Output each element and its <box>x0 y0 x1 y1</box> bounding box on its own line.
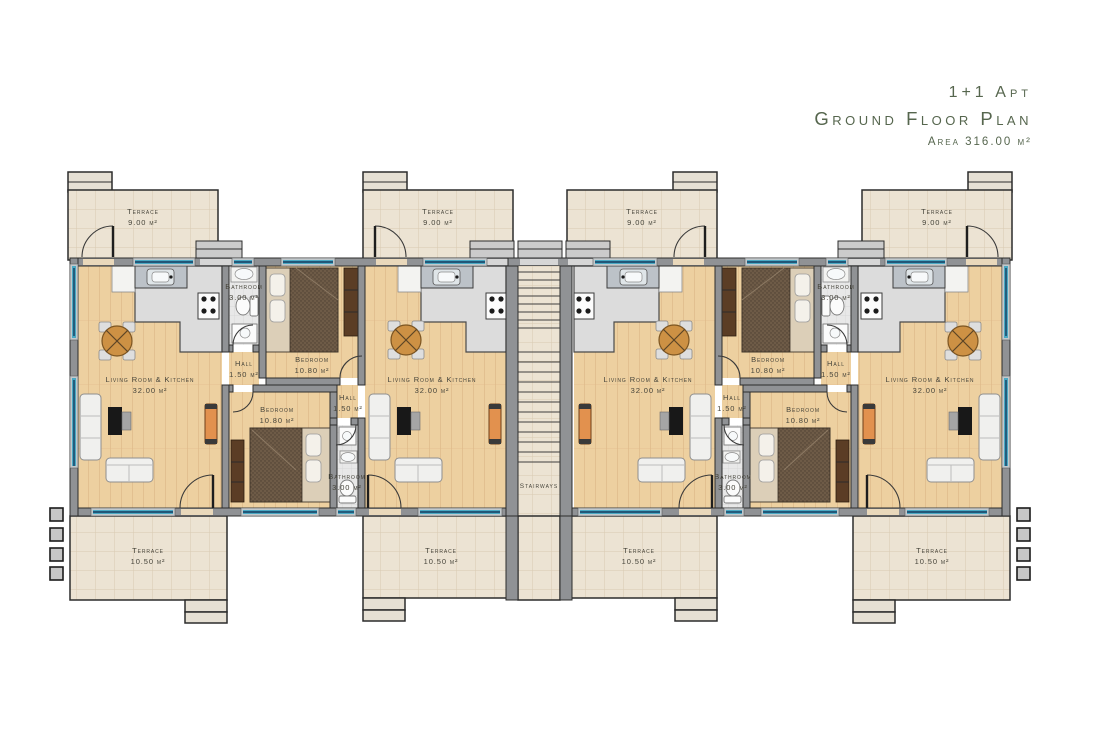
stove-burner <box>873 308 878 313</box>
bed-blanket <box>290 268 338 352</box>
console-cap <box>863 404 875 409</box>
interior-wall <box>743 385 827 392</box>
kitchen-sink-basin <box>911 272 928 282</box>
tv <box>108 407 122 435</box>
interior-wall <box>330 418 337 425</box>
stove-burner <box>489 308 494 313</box>
stove-burner <box>210 308 215 313</box>
door-opening <box>376 259 407 265</box>
door-opening <box>673 259 704 265</box>
stove-burner <box>864 308 869 313</box>
side-sofa <box>690 394 711 460</box>
wardrobe <box>231 440 244 502</box>
console-cap <box>205 404 217 409</box>
site-marker <box>1017 508 1030 521</box>
media-console <box>489 404 501 444</box>
plan-area-total: Area 316.00 m² <box>814 136 1032 148</box>
pillow <box>759 434 774 456</box>
wardrobe <box>722 268 736 336</box>
interior-wall <box>358 266 365 385</box>
toilet-tank <box>339 496 356 503</box>
plan-title: 1+1 Apt <box>814 84 1032 102</box>
interior-wall <box>266 378 340 385</box>
pillow <box>270 300 285 322</box>
toilet-bowl <box>726 480 740 496</box>
door-opening <box>867 509 899 515</box>
stove-burner <box>210 296 215 301</box>
toilet-tank <box>250 296 258 316</box>
stove <box>486 293 506 319</box>
terrace-bottom <box>560 516 717 598</box>
interior-wall <box>253 345 259 352</box>
wardrobe <box>344 268 358 336</box>
stove-burner <box>201 296 206 301</box>
site-marker <box>1017 567 1030 580</box>
tv-stand <box>122 412 131 430</box>
terrace-bottom <box>70 516 227 600</box>
interior-wall <box>847 385 851 392</box>
hall-floor <box>229 352 259 385</box>
console-cap <box>205 439 217 444</box>
door-opening <box>181 509 213 515</box>
stove-burner <box>864 296 869 301</box>
shower-head <box>830 328 840 338</box>
bath-sink <box>725 453 739 462</box>
media-console <box>863 404 875 444</box>
stairways-label: Stairways <box>499 483 579 490</box>
console-cap <box>489 439 501 444</box>
side-sofa <box>979 394 1000 460</box>
faucet <box>907 275 910 278</box>
site-marker <box>50 528 63 541</box>
door-opening <box>679 509 711 515</box>
terrace-steps <box>185 612 227 623</box>
stair-entry-opening <box>520 259 558 265</box>
terrace-steps <box>675 598 717 610</box>
interior-wall <box>330 392 337 508</box>
site-marker <box>50 508 63 521</box>
site-marker <box>1017 528 1030 541</box>
stove <box>198 293 219 319</box>
terrace-steps <box>853 600 895 612</box>
stove-burner <box>498 296 503 301</box>
stove-burner <box>201 308 206 313</box>
bed-blanket <box>778 428 830 502</box>
faucet <box>169 275 172 278</box>
terrace-steps <box>185 600 227 612</box>
stair-wall <box>560 266 572 516</box>
console-cap <box>579 439 591 444</box>
kitchen-sink-basin <box>438 272 455 282</box>
stove-burner <box>489 296 494 301</box>
media-console <box>579 404 591 444</box>
terrace-bottom <box>853 516 1010 600</box>
interior-wall <box>715 418 722 508</box>
kitchen-cabinet <box>659 266 682 292</box>
hall-floor <box>821 352 851 385</box>
console-cap <box>489 404 501 409</box>
toilet-tank <box>724 496 741 503</box>
interior-wall <box>358 418 365 508</box>
shower-head <box>240 328 250 338</box>
stove-burner <box>585 296 590 301</box>
console-cap <box>863 439 875 444</box>
stove-burner <box>498 308 503 313</box>
stove-burner <box>576 308 581 313</box>
terrace-steps <box>363 598 405 610</box>
toilet-tank <box>822 296 830 316</box>
bath-sink <box>341 453 355 462</box>
door-opening <box>966 259 997 265</box>
pillow <box>795 274 810 296</box>
pillow <box>306 434 321 456</box>
stove-burner <box>873 296 878 301</box>
bed-blanket <box>742 268 790 352</box>
door-opening <box>369 509 401 515</box>
faucet <box>621 275 624 278</box>
side-sofa <box>369 394 390 460</box>
stove-burner <box>585 308 590 313</box>
kitchen-cabinet <box>398 266 421 292</box>
pillow <box>270 274 285 296</box>
floor-plan-page: Terrace9.00 m²Terrace9.00 m²Terrace9.00 … <box>0 0 1100 733</box>
side-sofa <box>80 394 101 460</box>
stove-burner <box>576 296 581 301</box>
interior-wall <box>847 345 851 352</box>
interior-wall <box>743 418 750 425</box>
terrace-steps <box>363 610 405 621</box>
bath-sink <box>827 269 845 280</box>
tv <box>958 407 972 435</box>
interior-wall <box>351 418 358 425</box>
interior-wall <box>851 266 858 352</box>
site-marker <box>1017 548 1030 561</box>
interior-wall <box>743 392 750 508</box>
tv-stand <box>949 412 958 430</box>
interior-wall <box>851 385 858 508</box>
plan-subtitle: Ground Floor Plan <box>814 108 1032 130</box>
tv <box>669 407 683 435</box>
terrace-steps <box>675 610 717 621</box>
toilet-bowl <box>830 297 844 315</box>
kitchen-cabinet <box>112 266 135 292</box>
stair-wall <box>560 516 572 600</box>
site-marker <box>50 567 63 580</box>
toilet-bowl <box>340 480 354 496</box>
interior-wall <box>229 345 233 352</box>
title-block: 1+1 Apt Ground Floor Plan Area 316.00 m² <box>814 84 1032 148</box>
terrace-steps <box>853 612 895 623</box>
toilet-bowl <box>236 297 250 315</box>
interior-wall <box>715 266 722 385</box>
hall-floor <box>722 385 743 418</box>
stove <box>861 293 882 319</box>
interior-wall <box>259 266 266 378</box>
console-cap <box>579 404 591 409</box>
stair-wall <box>506 266 518 516</box>
bath-sink <box>235 269 253 280</box>
pillow <box>306 460 321 482</box>
kitchen-sink-basin <box>152 272 169 282</box>
interior-wall <box>821 345 827 352</box>
pillow <box>759 460 774 482</box>
stair-landing <box>518 516 560 600</box>
interior-wall <box>722 418 729 425</box>
bed-blanket <box>250 428 302 502</box>
interior-wall <box>229 385 233 392</box>
kitchen-cabinet <box>945 266 968 292</box>
faucet <box>455 275 458 278</box>
stair-wall <box>506 516 518 600</box>
media-console <box>205 404 217 444</box>
site-marker <box>50 548 63 561</box>
stove <box>574 293 594 319</box>
tv-stand <box>411 412 420 430</box>
wardrobe <box>836 440 849 502</box>
door-opening <box>83 259 114 265</box>
pillow <box>795 300 810 322</box>
interior-wall <box>253 385 337 392</box>
tv-stand <box>660 412 669 430</box>
tv <box>397 407 411 435</box>
interior-wall <box>740 378 814 385</box>
hall-floor <box>337 385 358 418</box>
interior-wall <box>222 385 229 508</box>
kitchen-sink-basin <box>625 272 642 282</box>
interior-wall <box>814 266 821 378</box>
interior-wall <box>222 266 229 352</box>
terrace-bottom <box>363 516 520 598</box>
